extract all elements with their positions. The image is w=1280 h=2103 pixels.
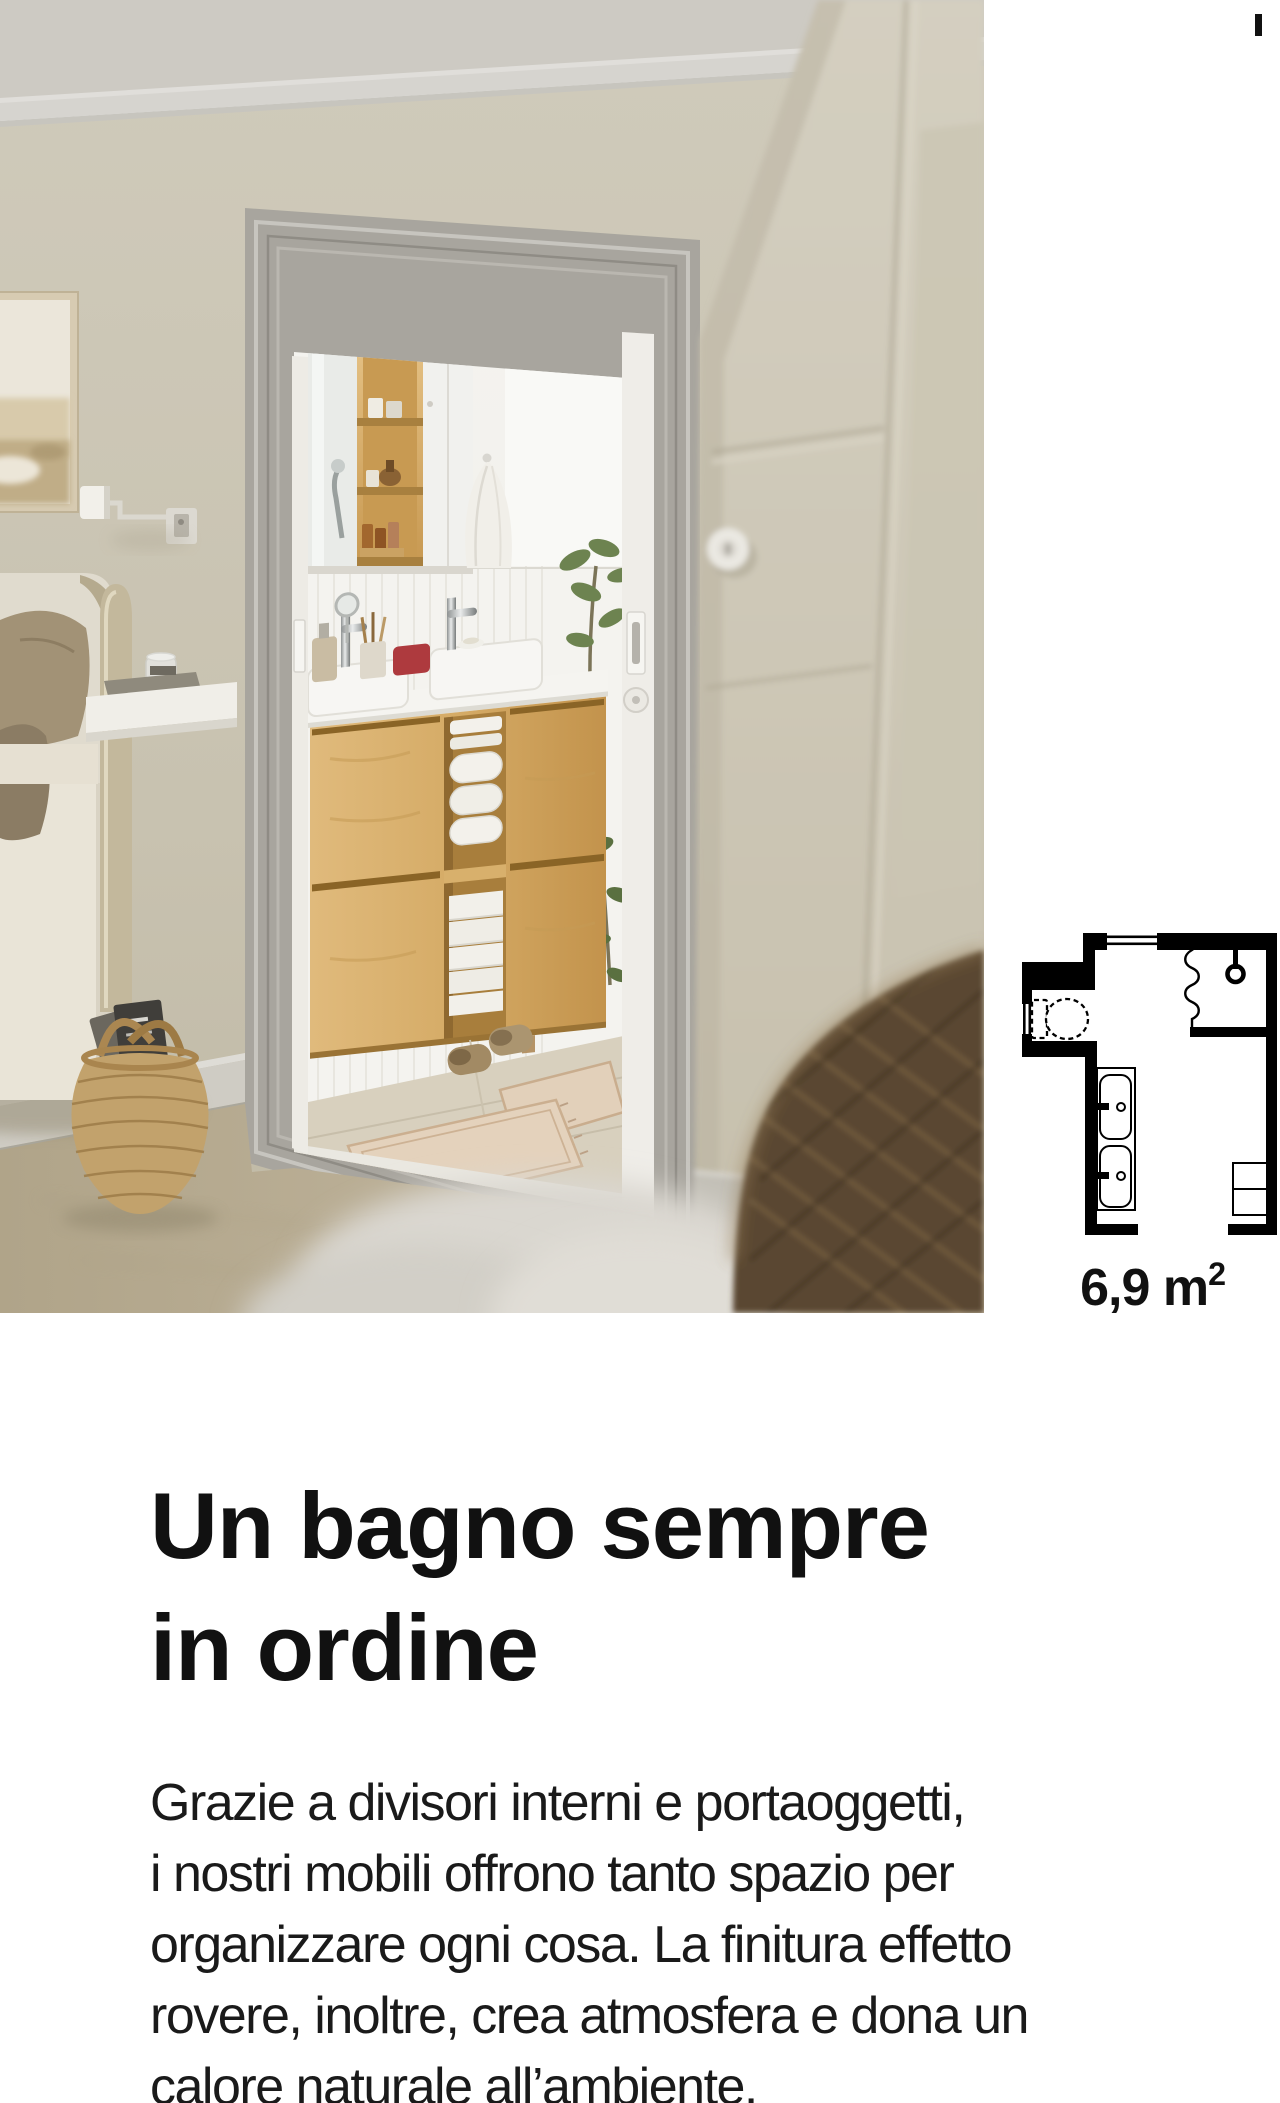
rolled-towels <box>450 751 502 846</box>
area-exponent: 2 <box>1208 1256 1225 1292</box>
body-line-4: rovere, inoltre, crea atmosfera e dona u… <box>150 1981 1210 2052</box>
mirror-cabinet <box>308 340 473 574</box>
artwork-frame <box>0 292 78 512</box>
vanity-symbol <box>1097 1068 1135 1210</box>
body-line-5: calore naturale all’ambiente. <box>150 2052 1210 2103</box>
storage-bench-symbol <box>1233 1163 1267 1215</box>
door-flush-pull <box>624 612 648 712</box>
folded-towels <box>449 890 503 1016</box>
red-canister <box>393 643 430 676</box>
crop-mark <box>1255 14 1262 36</box>
catalog-page: 6,9 m2 Un bagno sempre in ordine Grazie … <box>0 0 1280 2103</box>
doorway <box>245 208 700 1292</box>
bed-frame-pole <box>100 584 132 1012</box>
body-line-1: Grazie a divisori interni e portaoggetti… <box>150 1768 1210 1839</box>
pocket-door-right-edge <box>622 332 654 1218</box>
sink-right <box>430 638 542 700</box>
body-line-2: i nostri mobili offrono tanto spazio per <box>150 1839 1210 1910</box>
shower-symbol <box>1185 948 1266 1037</box>
floorplan <box>1018 931 1278 1241</box>
area-value: 6,9 m <box>1080 1259 1208 1317</box>
toilet-symbol <box>1032 999 1088 1039</box>
page-title: Un bagno sempre in ordine <box>150 1465 1130 1709</box>
room-photo <box>0 0 984 1313</box>
headline-line-2: in ordine <box>150 1587 1130 1709</box>
floorplan-area-label: 6,9 m2 <box>1018 1262 1225 1314</box>
pocket-door-left-edge <box>292 356 308 1154</box>
body-line-3: organizzare ogni cosa. La finitura effet… <box>150 1910 1210 1981</box>
body-text: Grazie a divisori interni e portaoggetti… <box>150 1768 1210 2103</box>
headline-line-1: Un bagno sempre <box>150 1465 1130 1587</box>
bathroom-view <box>294 330 654 1230</box>
room-photo-illustration <box>0 0 984 1313</box>
towel-shelf <box>444 711 506 1040</box>
floorplan-drawing <box>1018 931 1278 1241</box>
